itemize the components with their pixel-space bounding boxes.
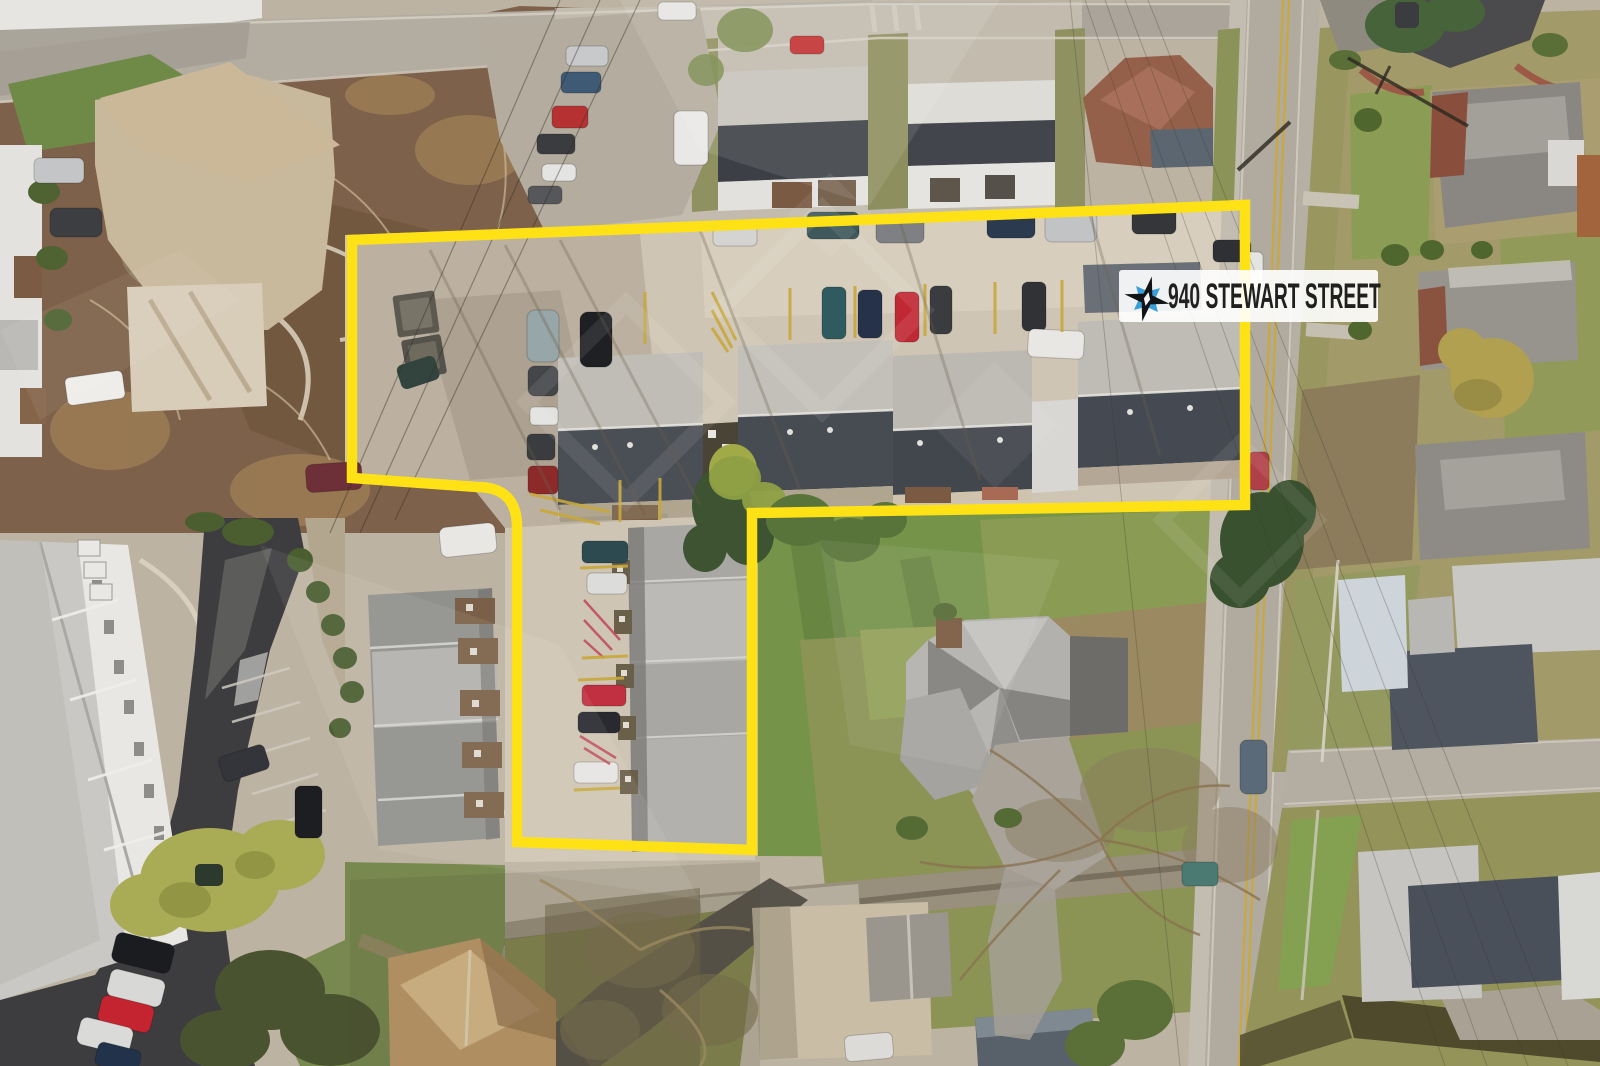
svg-text:940 STEWART STREET: 940 STEWART STREET	[1168, 276, 1381, 316]
